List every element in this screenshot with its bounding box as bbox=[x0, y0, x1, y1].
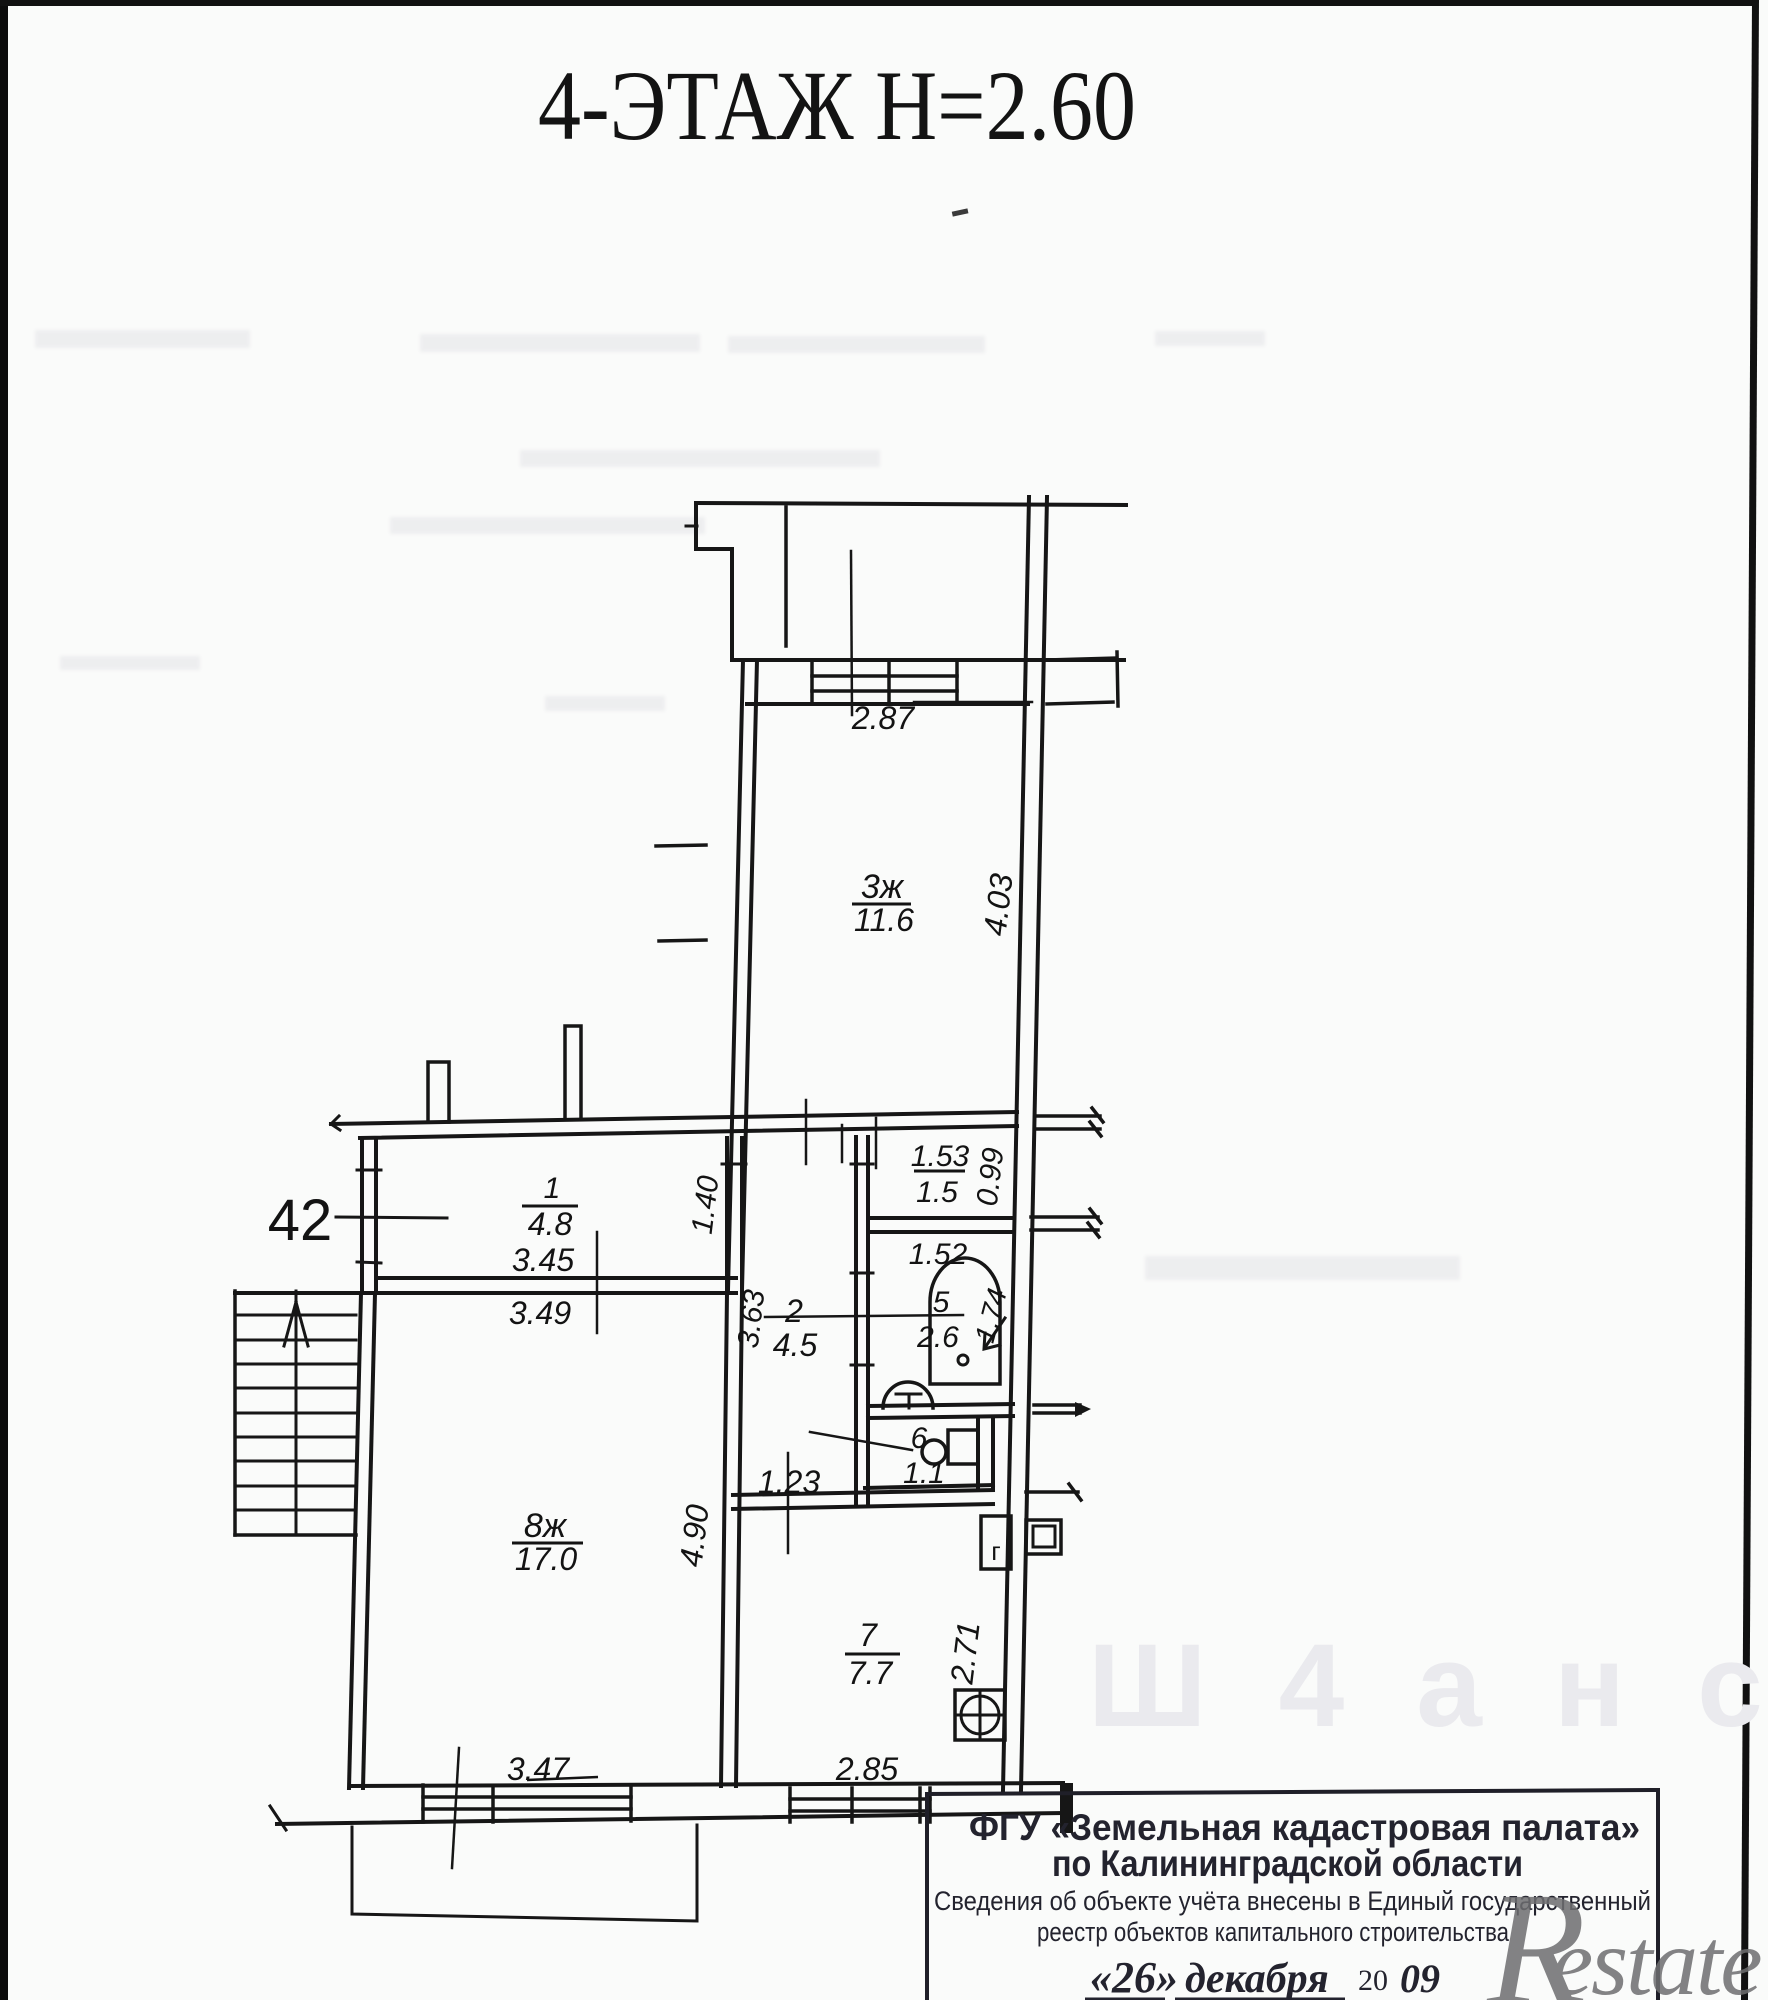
svg-text:3ж: 3ж bbox=[861, 868, 905, 906]
svg-text:1.1: 1.1 bbox=[903, 1457, 945, 1490]
svg-text:Ш4анс: Ш4анс bbox=[1088, 1620, 1768, 1752]
svg-text:2: 2 bbox=[784, 1293, 803, 1329]
svg-text:0.99: 0.99 bbox=[971, 1146, 1011, 1208]
svg-text:1.5: 1.5 bbox=[916, 1176, 958, 1209]
svg-text:6: 6 bbox=[911, 1422, 928, 1455]
svg-text:11.6: 11.6 bbox=[854, 902, 914, 938]
svg-text:ФГУ «Земельная кадастровая пал: ФГУ «Земельная кадастровая палата» bbox=[969, 1807, 1640, 1848]
svg-text:17.0: 17.0 bbox=[515, 1541, 577, 1577]
svg-text:реестр объектов капитального с: реестр объектов капитального строительст… bbox=[1037, 1917, 1510, 1947]
svg-text:42: 42 bbox=[268, 1188, 333, 1253]
svg-text:по Калининградской области: по Калининградской области bbox=[1052, 1843, 1523, 1884]
svg-text:1.52: 1.52 bbox=[909, 1238, 968, 1271]
svg-text:09: 09 bbox=[1400, 1956, 1440, 2000]
svg-text:5: 5 bbox=[933, 1286, 950, 1319]
svg-text:3.47: 3.47 bbox=[507, 1751, 570, 1787]
svg-text:2.87: 2.87 bbox=[851, 700, 915, 736]
svg-text:4.03: 4.03 bbox=[976, 871, 1019, 937]
svg-text:3.45: 3.45 bbox=[512, 1242, 574, 1278]
svg-text:«26»: «26» bbox=[1090, 1953, 1178, 2000]
svg-text:2.6: 2.6 bbox=[916, 1321, 959, 1354]
svg-text:3.49: 3.49 bbox=[509, 1295, 571, 1331]
svg-text:1.53: 1.53 bbox=[911, 1140, 970, 1173]
svg-text:1.23: 1.23 bbox=[758, 1464, 820, 1500]
svg-text:8ж: 8ж bbox=[524, 1507, 568, 1545]
svg-text:4.8: 4.8 bbox=[528, 1206, 573, 1242]
svg-text:1: 1 bbox=[544, 1172, 561, 1205]
svg-text:декабря: декабря bbox=[1185, 1956, 1329, 2000]
svg-text:estate: estate bbox=[1551, 1909, 1761, 2000]
svg-text:1.74: 1.74 bbox=[969, 1285, 1013, 1346]
svg-text:7.7: 7.7 bbox=[848, 1655, 894, 1691]
svg-text:7: 7 bbox=[859, 1617, 878, 1653]
svg-text:1.40: 1.40 bbox=[686, 1174, 726, 1236]
svg-text:2.71: 2.71 bbox=[943, 1620, 986, 1687]
svg-text:2.85: 2.85 bbox=[835, 1751, 898, 1787]
svg-text:4-ЭТАЖ Н=2.60: 4-ЭТАЖ Н=2.60 bbox=[538, 50, 1136, 161]
svg-text:3.63: 3.63 bbox=[732, 1288, 772, 1350]
svg-text:4.5: 4.5 bbox=[773, 1327, 818, 1363]
svg-text:20: 20 bbox=[1358, 1964, 1388, 1997]
svg-text:г: г bbox=[991, 1536, 1000, 1566]
svg-text:4.90: 4.90 bbox=[672, 1502, 715, 1568]
